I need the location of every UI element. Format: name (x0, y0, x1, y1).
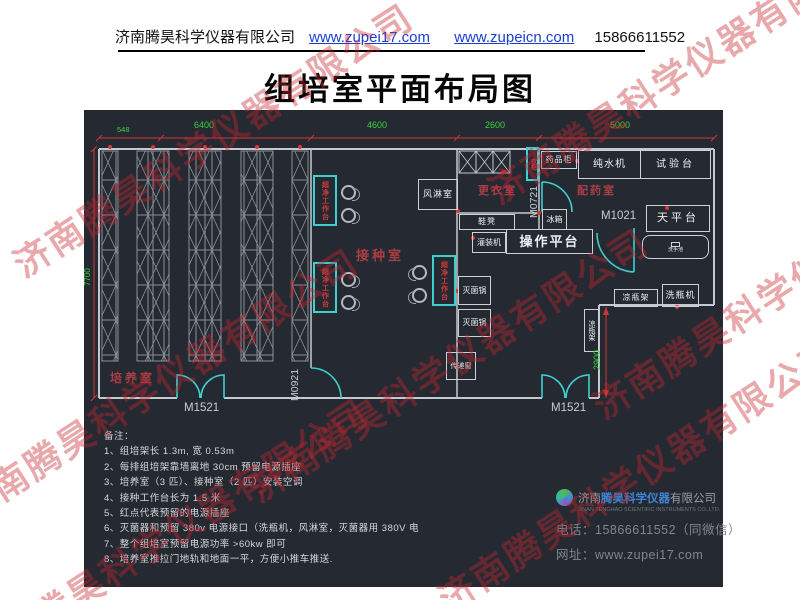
stool-icon (412, 265, 427, 280)
page: 济南腾昊科学仪器有限公司 www.zupei17.com www.zupeicn… (0, 0, 800, 600)
fridge-box: 冰箱 (542, 209, 567, 230)
dim-7700: 7700 (84, 250, 92, 286)
sink-label: 洗手池 (668, 248, 683, 253)
bottle-washer-label: 洗瓶机 (665, 291, 695, 300)
room-label-inoculation: 接种室 (356, 249, 404, 262)
dim-2900: 2900 (593, 336, 602, 370)
stool-icon (412, 288, 427, 303)
footer-phone: 电话：15866611552（同微信） (556, 519, 741, 538)
medicine-cabinet-box: 药品柜 (541, 151, 577, 169)
room-label-culture: 培养室 (110, 372, 155, 384)
bottle-rack-h-box: 凉瓶架 (614, 289, 658, 307)
note-item: 3、培养室（3 匹）、接种室（2 匹）安装空调 (104, 475, 419, 490)
company-name-en: JINAN TENGHAO SCIENTIFIC INSTRUMENTS CO.… (578, 507, 741, 513)
notes-block: 备注： 1、组培架长 1.3m, 宽 0.53m 2、每排组培架靠墙离地 30c… (104, 429, 419, 568)
company-prefix: 济南 (578, 493, 601, 505)
wardrobe-label: 衣柜 (530, 158, 536, 170)
operation-platform-label: 操作平台 (519, 235, 579, 248)
test-bench-label: 试验台 (641, 160, 710, 170)
door-m0921-icon (311, 368, 341, 398)
shoe-bench-label: 鞋凳 (478, 218, 496, 226)
clean-bench-label: 超净工作台 (441, 261, 448, 301)
prep-bench-box: 纯水机 试验台 (578, 150, 711, 179)
room-label-changing: 更衣室 (478, 186, 517, 197)
note-item: 2、每排组培架靠墙离地 30cm 预留电源插座 (104, 460, 419, 475)
sink-box: 洗手池 (642, 235, 709, 259)
door-label-m1521-left: M1521 (184, 403, 219, 415)
sterilizer-label: 灭菌锅 (463, 319, 487, 327)
air-shower-label: 风淋室 (423, 190, 453, 199)
dim-548: 548 (117, 126, 130, 134)
door-label-m1021: M1021 (601, 211, 636, 223)
filling-machine-label: 灌装机 (477, 239, 501, 247)
header-rule (118, 50, 645, 52)
balance-platform-label: 天平台 (657, 213, 699, 224)
dim-6400: 6400 (194, 121, 214, 130)
culture-racks (102, 151, 308, 361)
header-company: 济南腾昊科学仪器有限公司 (115, 29, 295, 46)
note-item: 6、灭菌器和预留 380v 电源接口（洗瓶机，风淋室，灭菌器用 380V 电 (104, 521, 419, 536)
door-label-m0721: M0721 (529, 178, 540, 218)
sterilizer-2-box: 灭菌锅 (458, 309, 491, 337)
dim-2600: 2600 (485, 121, 505, 130)
sterilizer-label: 灭菌锅 (463, 287, 487, 295)
header-link-zupeicn[interactable]: www.zupeicn.com (454, 29, 574, 46)
dim-5000: 5000 (610, 121, 630, 130)
dim-4600: 4600 (367, 121, 387, 130)
clean-bench-label: 超净工作台 (322, 181, 329, 221)
note-item: 1、组培架长 1.3m, 宽 0.53m (104, 444, 419, 459)
water-machine-label: 纯水机 (579, 151, 641, 178)
footer-website: 网址：www.zupei17.com (556, 544, 741, 563)
door-m1521-left-icon (177, 375, 224, 398)
header-phone: 15866611552 (594, 29, 685, 46)
header-link-zupei17[interactable]: www.zupei17.com (309, 29, 430, 46)
footer-logo: 济南腾昊科学仪器有限公司 JINAN TENGHAO SCIENTIFIC IN… (556, 489, 741, 563)
medicine-cabinet-label: 药品柜 (546, 156, 573, 164)
stool-icon (341, 295, 356, 310)
note-item: 7、整个组培室预留电源功率 >60kw 即可 (104, 537, 419, 552)
air-shower-box: 风淋室 (418, 179, 458, 210)
faucet-icon (671, 242, 680, 247)
bottle-rack-label: 凉瓶架 (623, 294, 650, 302)
pass-window-label: 传递窗 (451, 363, 472, 370)
pass-window-box: 传递窗 (446, 352, 476, 380)
door-label-m1521-right: M1521 (551, 403, 586, 415)
shoe-bench-box: 鞋凳 (459, 214, 515, 230)
door-label-m0921: M0921 (290, 359, 301, 401)
note-item: 5、红点代表预留的电源插座 (104, 506, 419, 521)
sterilizer-1-box: 灭菌锅 (458, 276, 491, 305)
room-label-dispensing: 配药室 (577, 186, 616, 197)
company-logo-icon (556, 489, 573, 506)
page-title: 组培室平面布局图 (0, 64, 800, 109)
notes-title: 备注： (104, 429, 419, 444)
clean-bench-label: 超净工作台 (322, 268, 329, 308)
clean-bench-1: 超净工作台 (313, 175, 337, 226)
header: 济南腾昊科学仪器有限公司 www.zupei17.com www.zupeicn… (0, 26, 800, 47)
door-m1021-icon (597, 228, 634, 272)
filling-machine-box: 灌装机 (472, 232, 506, 253)
stool-icon (341, 272, 356, 287)
stool-icon (341, 185, 356, 200)
company-brand: 腾昊科学仪器 (601, 493, 670, 505)
balance-platform-box: 天平台 (646, 205, 710, 232)
wardrobe-box: 衣柜 (526, 147, 539, 181)
operation-platform-box: 操作平台 (506, 229, 593, 254)
door-m0721-icon (542, 182, 572, 212)
door-m1521-right-icon (542, 375, 589, 398)
company-name: 济南腾昊科学仪器有限公司 (578, 490, 716, 506)
clean-bench-3: 超净工作台 (432, 255, 456, 306)
note-item: 4、接种工作台长为 1.5 米 (104, 491, 419, 506)
clean-bench-2: 超净工作台 (313, 262, 337, 313)
locker-row (459, 151, 510, 173)
fridge-label: 冰箱 (547, 216, 563, 224)
bottle-washer-box: 洗瓶机 (662, 284, 699, 307)
note-item: 8、培养室推拉门地轨和地面一平，方便小推车推送. (104, 552, 419, 567)
company-suffix: 有限公司 (670, 493, 716, 505)
stool-icon (341, 208, 356, 223)
